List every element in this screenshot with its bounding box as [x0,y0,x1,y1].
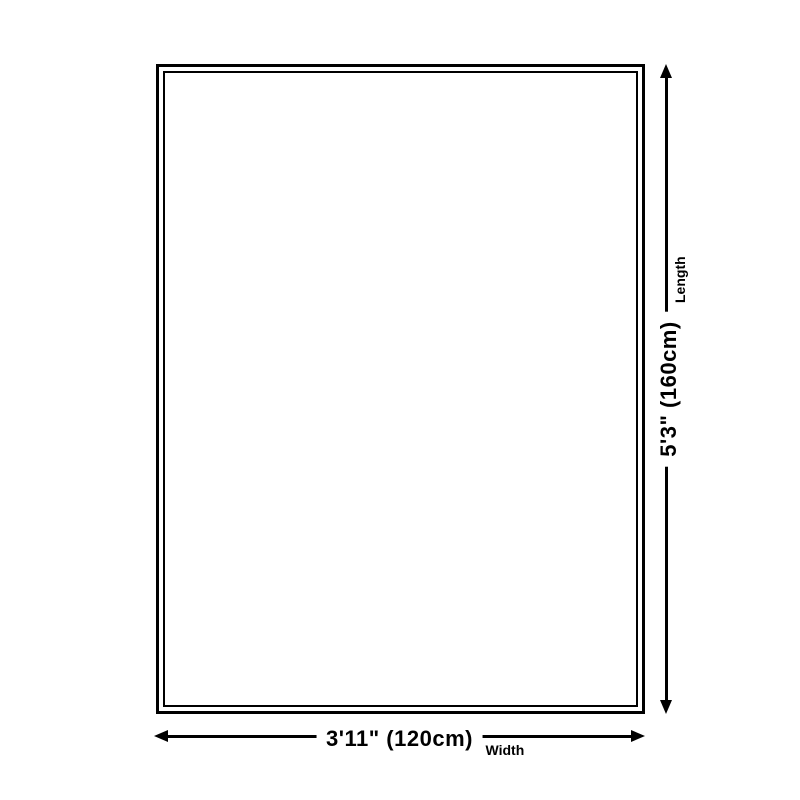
rug-dimension-diagram: 3'11" (120cm) Width 5'3" (160cm) Length [0,0,800,800]
length-label: Length [673,256,687,303]
width-dimension: 3'11" (120cm) Width [154,722,645,756]
width-label: Width [486,743,525,757]
arrow-right-icon [631,730,645,742]
arrow-left-icon [154,730,168,742]
rug-inner-outline [163,71,638,707]
width-value: 3'11" (120cm) [316,722,483,756]
arrow-down-icon [660,700,672,714]
rug-outline [156,64,645,714]
arrow-up-icon [660,64,672,78]
length-value: 5'3" (160cm) [652,311,686,466]
length-dimension: 5'3" (160cm) Length [652,64,686,714]
